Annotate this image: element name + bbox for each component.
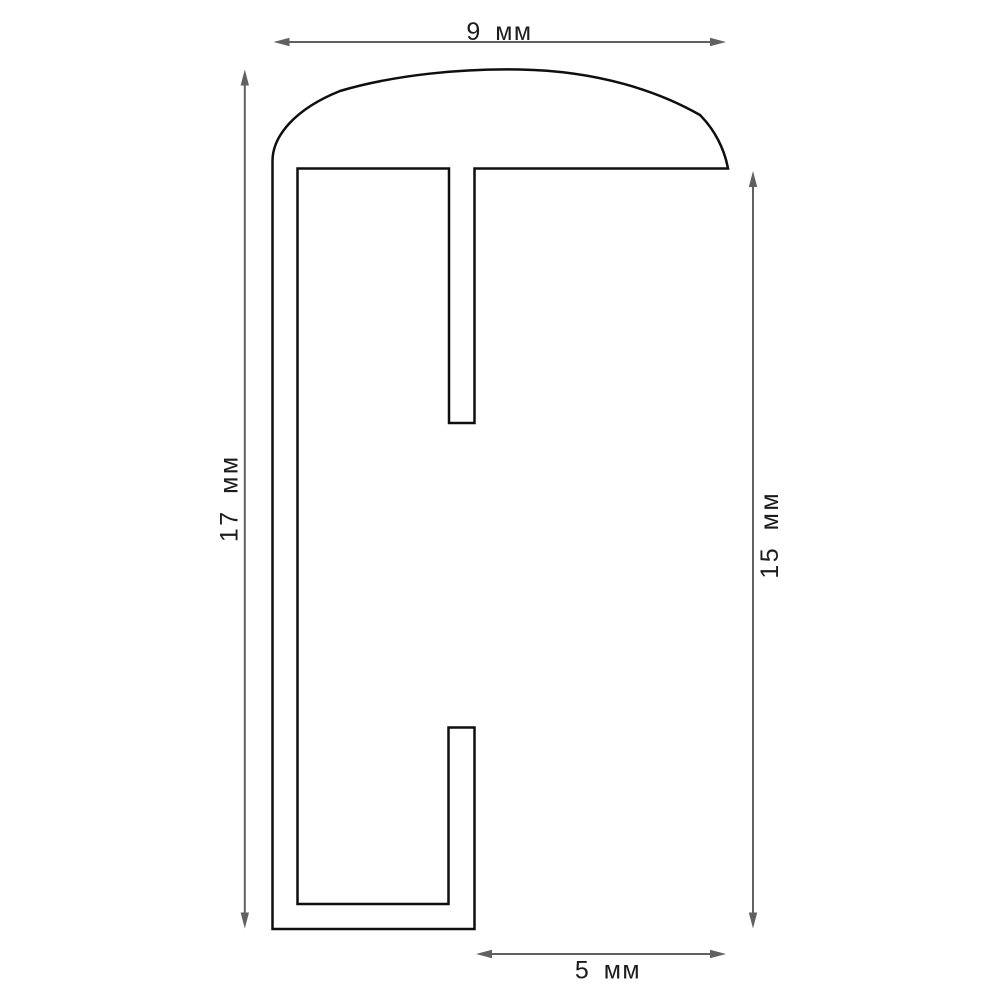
- svg-text:15 мм: 15 мм: [756, 491, 784, 579]
- svg-text:5 мм: 5 мм: [575, 957, 641, 985]
- svg-text:9 мм: 9 мм: [466, 18, 532, 46]
- svg-text:17 мм: 17 мм: [216, 454, 244, 542]
